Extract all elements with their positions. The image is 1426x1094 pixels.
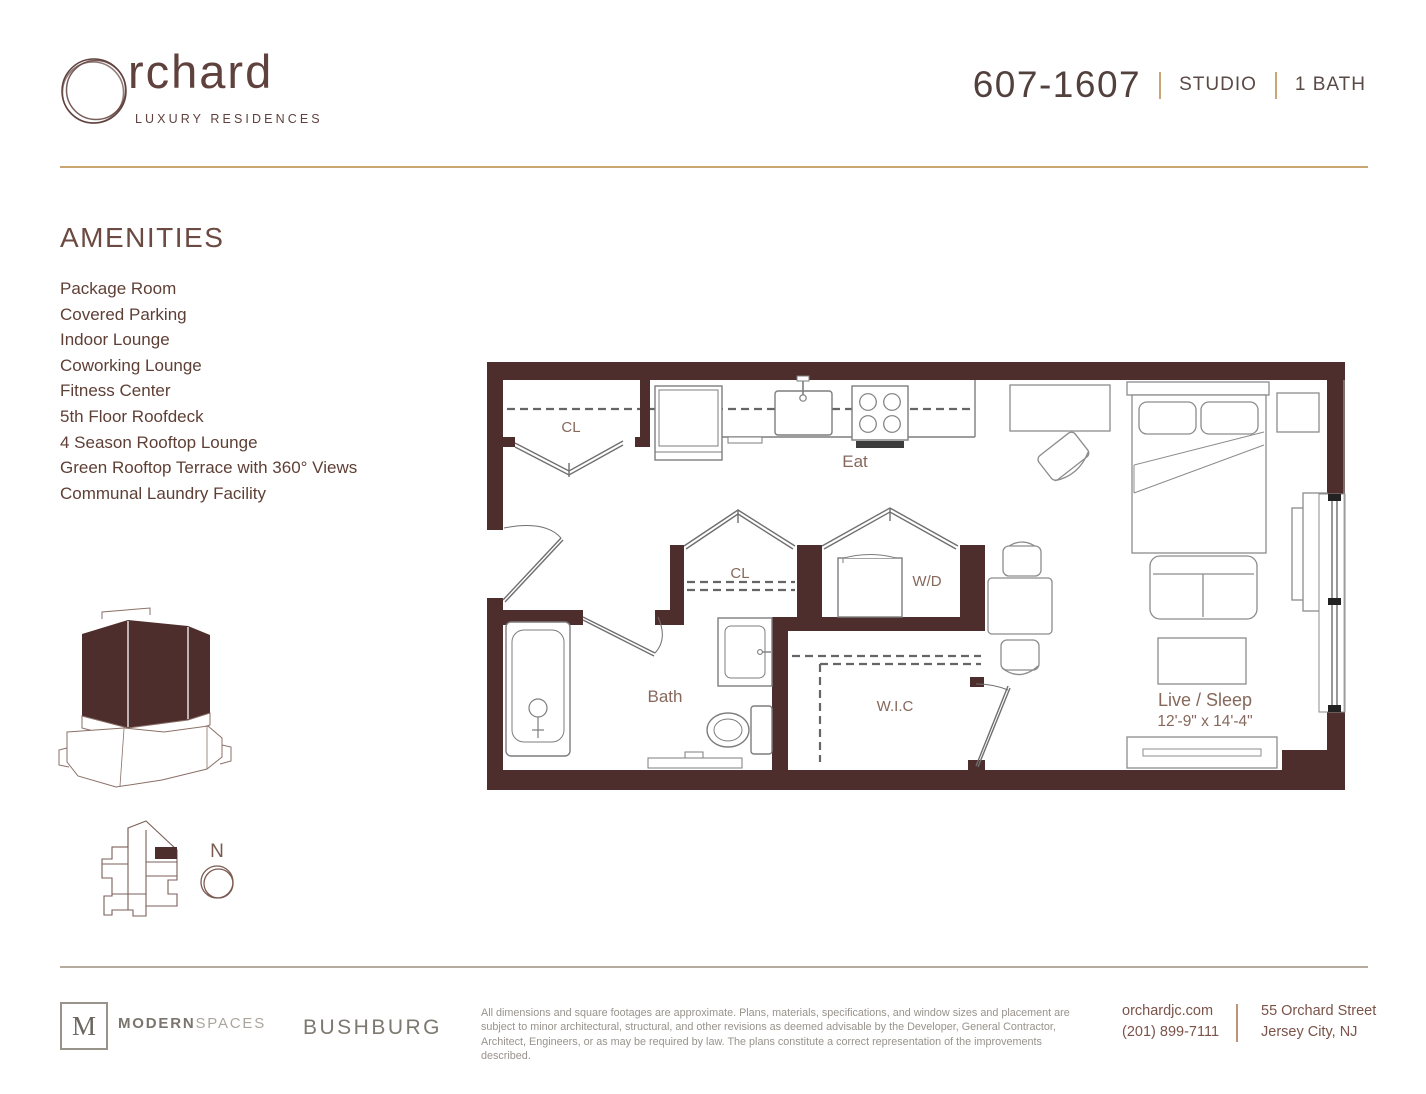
pillow <box>1201 402 1258 434</box>
north-label: N <box>210 841 224 862</box>
live-sleep-dimensions: 12'-9" x 14'-4" <box>1157 713 1252 730</box>
legal-disclaimer: All dimensions and square footages are a… <box>481 1006 1071 1063</box>
unit-type: STUDIO <box>1179 74 1257 96</box>
unit-separator <box>1159 72 1161 99</box>
dining-chair <box>1003 546 1041 576</box>
live-sleep-label: Live / Sleep <box>1158 690 1252 710</box>
brand-wordmark: rchard <box>128 44 273 99</box>
modern-spaces-light: SPACES <box>195 1015 266 1032</box>
phone-number: (201) 899-7111 <box>1122 1022 1219 1043</box>
dining-set <box>988 542 1052 675</box>
amenity-item: Indoor Lounge <box>60 327 357 353</box>
amenities-title: AMENITIES <box>60 222 357 254</box>
kitchen <box>655 376 975 460</box>
flyer-page: rchard LUXURY RESIDENCES 607-1607 STUDIO… <box>0 0 1426 1094</box>
amenities-section: AMENITIES Package Room Covered Parking I… <box>60 222 357 506</box>
bathroom <box>506 618 772 768</box>
stove <box>852 386 908 440</box>
address-block: 55 Orchard Street Jersey City, NJ <box>1261 1001 1376 1043</box>
unit-separator <box>1275 72 1277 99</box>
key-plan <box>100 820 182 920</box>
north-compass-icon: N <box>195 838 241 904</box>
unit-info: 607-1607 STUDIO 1 BATH <box>973 64 1366 106</box>
closet1-label: CL <box>561 419 580 436</box>
amenity-item: Coworking Lounge <box>60 353 357 379</box>
unit-number: 607-1607 <box>973 64 1141 106</box>
modern-spaces-monogram-icon: M <box>60 1002 108 1050</box>
toilet <box>751 706 772 754</box>
eat-label: Eat <box>842 452 868 471</box>
modern-spaces-bold: MODERN <box>118 1015 195 1032</box>
desk <box>1010 385 1110 431</box>
footer-divider <box>60 966 1368 968</box>
amenity-item: Package Room <box>60 276 357 302</box>
brand-logo: rchard LUXURY RESIDENCES <box>58 52 358 132</box>
washer-dryer-unit <box>838 555 902 618</box>
pillow <box>1139 402 1196 434</box>
dining-table <box>988 578 1052 634</box>
closet2-label: CL <box>730 565 749 582</box>
amenity-item: 5th Floor Roofdeck <box>60 404 357 430</box>
monogram-letter: M <box>72 1011 96 1042</box>
contact-info: orchardjc.com (201) 899-7111 <box>1122 1001 1219 1043</box>
amenities-list: Package Room Covered Parking Indoor Loun… <box>60 276 357 506</box>
address-city: Jersey City, NJ <box>1261 1022 1376 1043</box>
desk-chair <box>1036 430 1093 485</box>
washer-dryer-label: W/D <box>912 573 941 590</box>
brand-tagline: LUXURY RESIDENCES <box>135 112 323 126</box>
floor-plan: CL Eat CL W/D Bath W.I.C Live / Sleep 12… <box>487 360 1347 792</box>
bed <box>1127 382 1269 553</box>
modern-spaces-logo: MODERNSPACES <box>118 1015 266 1032</box>
loveseat <box>1150 556 1257 619</box>
amenity-item: Covered Parking <box>60 302 357 328</box>
amenity-item: 4 Season Rooftop Lounge <box>60 430 357 456</box>
coffee-table <box>1158 638 1246 684</box>
building-illustration <box>58 598 243 803</box>
orchard-o-icon <box>58 54 132 128</box>
amenity-item: Fitness Center <box>60 378 357 404</box>
bath-label: Bath <box>648 687 683 706</box>
dining-chair <box>1001 640 1039 670</box>
highlighted-unit <box>155 847 177 859</box>
wic-label: W.I.C <box>877 698 914 715</box>
website-link[interactable]: orchardjc.com <box>1122 1001 1219 1022</box>
unit-baths: 1 BATH <box>1295 74 1366 96</box>
nightstand <box>1277 393 1319 432</box>
amenity-item: Green Rooftop Terrace with 360° Views <box>60 455 357 481</box>
bushburg-logo: BUSHBURG <box>303 1016 442 1040</box>
amenity-item: Communal Laundry Facility <box>60 481 357 507</box>
bath-mat <box>648 758 742 768</box>
furniture <box>988 382 1327 768</box>
header-divider <box>60 166 1368 168</box>
address-street: 55 Orchard Street <box>1261 1001 1376 1022</box>
contact-separator <box>1236 1004 1238 1042</box>
media-console <box>1127 737 1277 768</box>
